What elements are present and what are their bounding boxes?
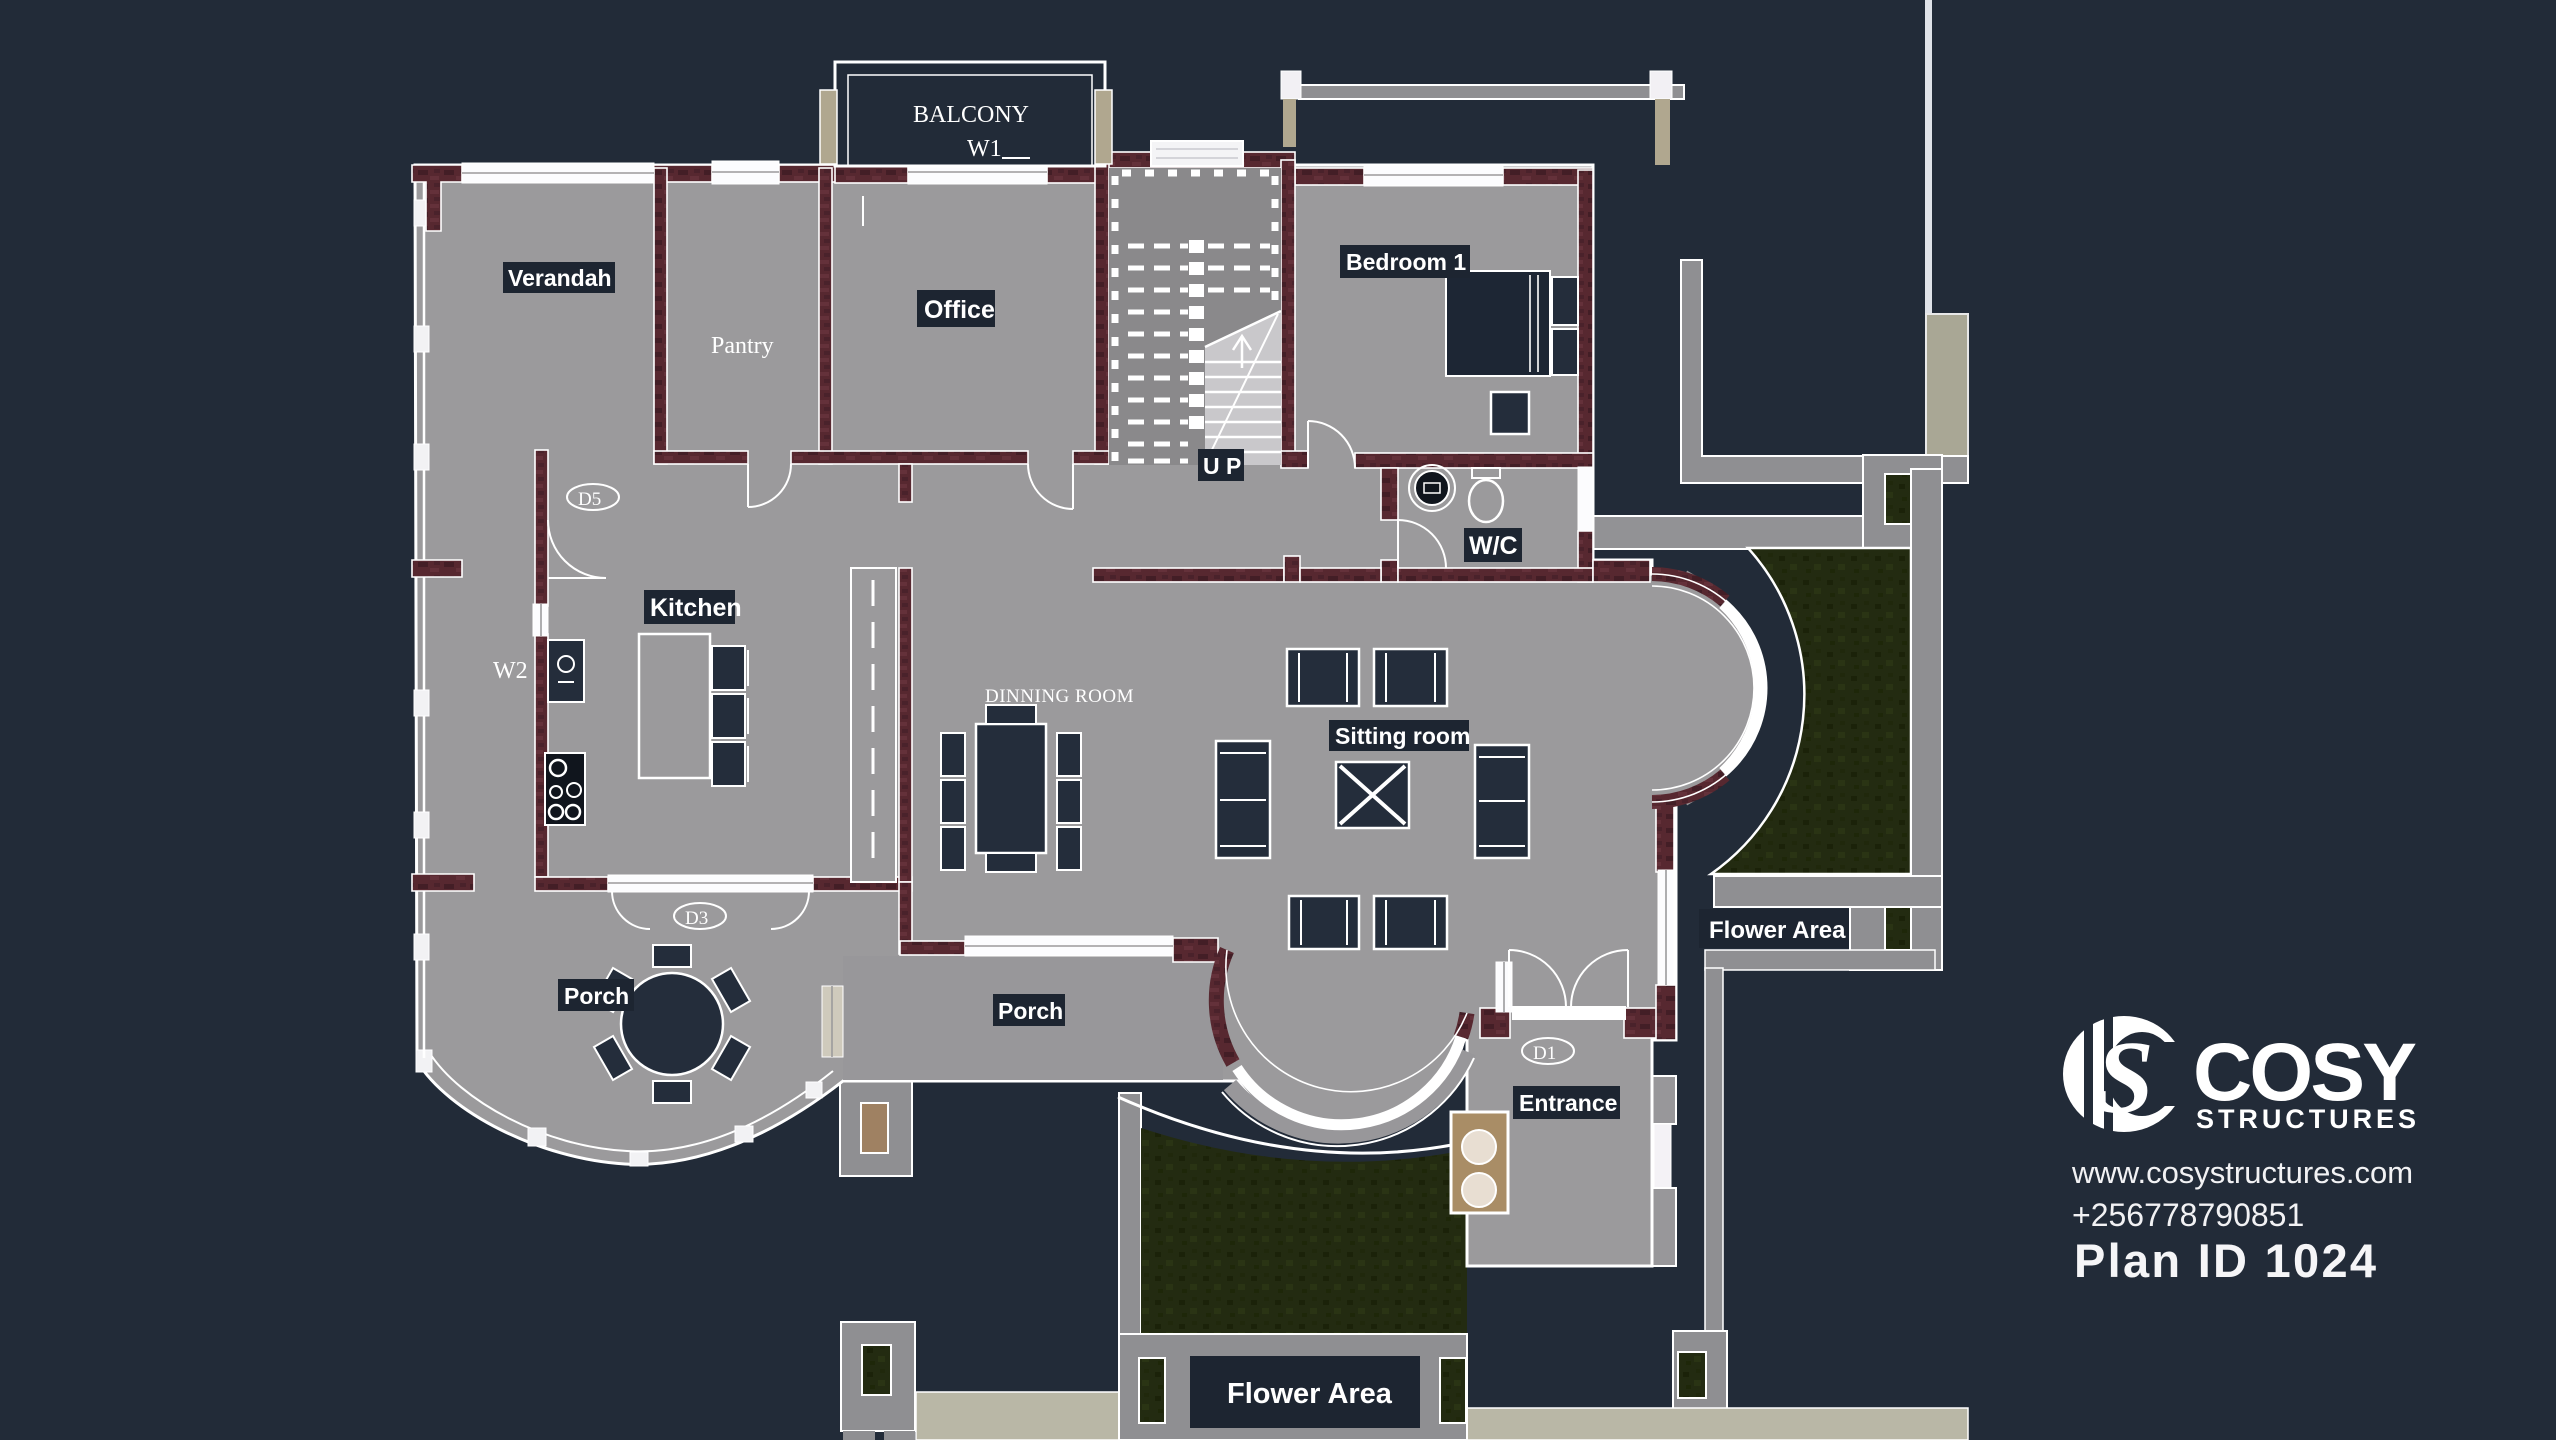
svg-text:Porch: Porch <box>564 983 629 1009</box>
svg-text:U P: U P <box>1203 453 1241 479</box>
svg-text:D1: D1 <box>1533 1043 1556 1064</box>
svg-text:Office: Office <box>924 296 995 324</box>
svg-text:D3: D3 <box>685 908 708 929</box>
svg-text:Entrance: Entrance <box>1519 1090 1617 1116</box>
svg-text:W1: W1 <box>967 136 1002 162</box>
svg-text:www.cosystructures.com: www.cosystructures.com <box>2071 1155 2413 1190</box>
svg-text:Porch: Porch <box>998 998 1063 1024</box>
svg-text:Flower Area: Flower Area <box>1709 917 1846 944</box>
svg-text:W/C: W/C <box>1469 532 1518 560</box>
svg-text:Kitchen: Kitchen <box>650 594 742 622</box>
svg-text:DINNING ROOM: DINNING ROOM <box>985 686 1134 707</box>
svg-text:Verandah: Verandah <box>508 265 612 291</box>
svg-text:W2: W2 <box>493 658 528 684</box>
svg-text:BALCONY: BALCONY <box>913 102 1029 128</box>
svg-text:Bedroom 1: Bedroom 1 <box>1346 249 1466 275</box>
svg-text:Sitting room: Sitting room <box>1335 723 1470 749</box>
svg-text:Plan ID 1024: Plan ID 1024 <box>2074 1234 2376 1287</box>
svg-text:+256778790851: +256778790851 <box>2072 1197 2304 1233</box>
svg-text:S: S <box>2096 1020 2154 1135</box>
svg-text:Pantry: Pantry <box>711 333 774 359</box>
svg-text:Flower Area: Flower Area <box>1227 1378 1393 1410</box>
svg-text:D5: D5 <box>578 489 601 510</box>
